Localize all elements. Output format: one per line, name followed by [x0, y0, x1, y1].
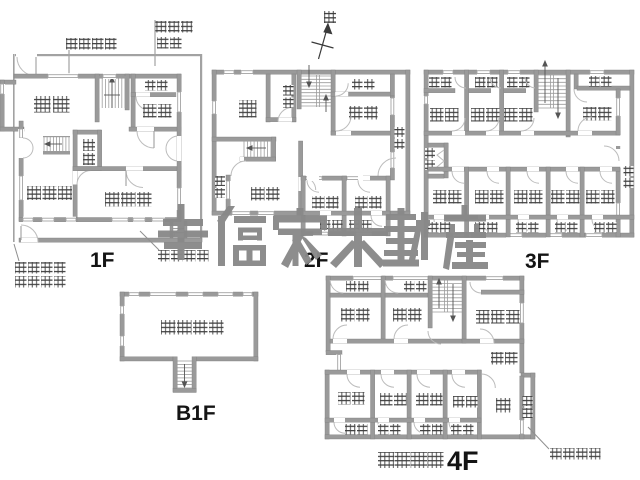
svg-text:1F: 1F: [90, 249, 115, 272]
svg-text:3F: 3F: [525, 250, 550, 273]
svg-text:B1F: B1F: [176, 402, 216, 425]
svg-text:4F: 4F: [447, 446, 479, 476]
